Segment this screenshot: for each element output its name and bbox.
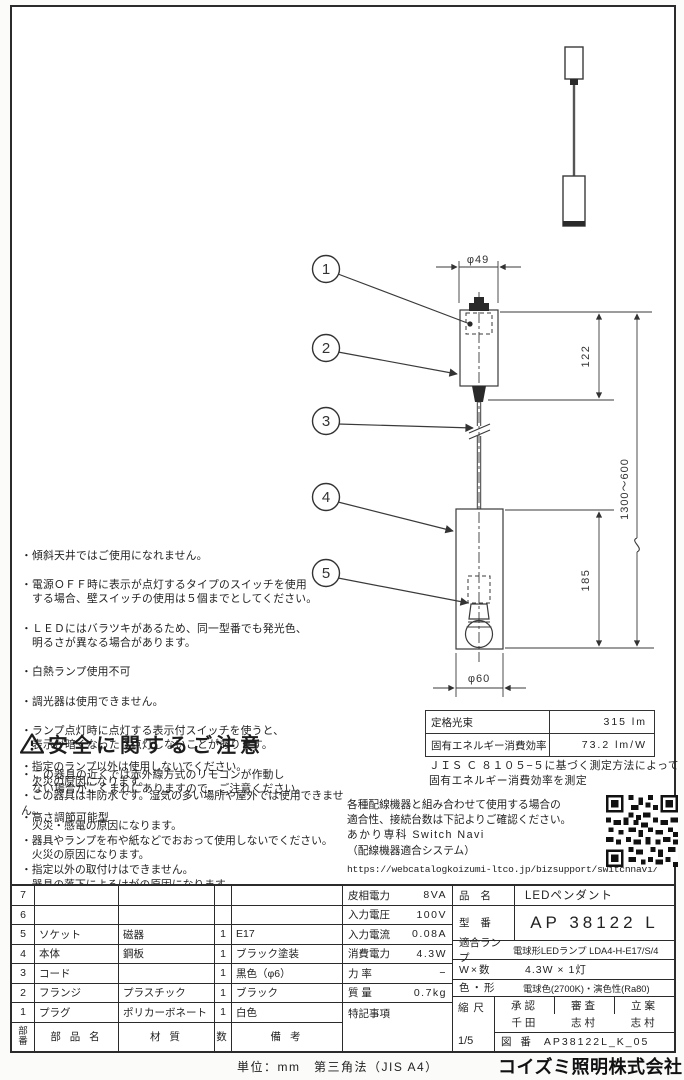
table-row: 適合ランプ 電球形LEDランプ LDA4-H-E17/S/4	[453, 941, 674, 961]
part-qty	[215, 886, 232, 905]
wattage: 4.3W × 1灯	[515, 960, 674, 979]
part-material: プラスチック	[119, 984, 215, 1003]
switch-navi-info: 各種配線機器と組み合わせて使用する場合の 適合性、接続台数は下記よりご確認くださ…	[347, 798, 599, 859]
approver-name: 志村	[555, 1014, 615, 1032]
header-material: 材 質	[119, 1023, 215, 1052]
weight-label: 質 量	[348, 985, 372, 1000]
usage-note: ・調光器は使用できません。	[21, 695, 343, 710]
navi-line: 適合性、接続台数は下記よりご確認ください。	[347, 813, 599, 828]
table-row: W×数 4.3W × 1灯	[453, 960, 674, 980]
table-row: 色・形 電球色(2700K)・演色性(Ra80)	[453, 980, 674, 998]
wattage-label: W×数	[453, 960, 515, 979]
part-no: 1	[12, 1003, 35, 1022]
part-qty: 1	[215, 1003, 232, 1022]
main-pendant-view	[456, 292, 503, 662]
table-row: 4 本体 鋼板 1 ブラック塗装	[12, 945, 342, 965]
part-name	[35, 906, 119, 925]
apparent-power-label: 皮相電力	[348, 888, 390, 903]
table-row: 皮相電力 8VA	[343, 886, 452, 906]
part-material: 鋼板	[119, 945, 215, 964]
approval-roles-row: 承認 審査 立案	[495, 997, 674, 1014]
units-projection-note: 単位：mm 第三角法（JIS A4）	[237, 1058, 439, 1075]
part-no: 3	[12, 964, 35, 983]
part-qty	[215, 906, 232, 925]
approval-names-row: 千田 志村 志村	[495, 1014, 674, 1032]
safety-section-title: 安全に関するご注意	[20, 729, 264, 758]
table-row: 品 名 LEDペンダント	[453, 886, 674, 906]
table-row: 1 プラグ ポリカーボネート 1 白色	[12, 1003, 342, 1023]
callout-4: 4	[322, 489, 330, 506]
drawing-number: AP38122L_K_05	[544, 1036, 649, 1048]
part-name: コード	[35, 964, 119, 983]
special-notes-label: 特記事項	[348, 1006, 390, 1021]
dim-label-overall-height: 1300〜600	[619, 458, 631, 520]
part-note: ブラック	[232, 984, 342, 1003]
scale-label: 縮 尺	[458, 1000, 494, 1015]
dim-label-body-height: 122	[580, 345, 592, 368]
part-note: 白色	[232, 1003, 342, 1022]
usage-note: ・白熱ランプ使用不可	[21, 665, 343, 680]
callout-1: 1	[322, 261, 330, 278]
header-part-no: 部 番	[12, 1023, 35, 1052]
table-row: 6	[12, 906, 342, 926]
compatible-lamp-label: 適合ランプ	[453, 941, 511, 960]
part-no: 7	[12, 886, 35, 905]
warning-triangle-icon	[20, 733, 44, 754]
part-no: 2	[12, 984, 35, 1003]
approval-role: 立案	[615, 997, 674, 1014]
navi-line: 各種配線機器と組み合わせて使用する場合の	[347, 798, 599, 813]
part-material: 磁器	[119, 925, 215, 944]
part-material: ポリカーボネート	[119, 1003, 215, 1022]
approval-role: 審査	[555, 997, 615, 1014]
title-block-table: 7 6 5 ソケット 磁器 1 E17 4 本体 鋼板 1 ブラック塗装	[10, 884, 676, 1053]
part-note	[232, 906, 342, 925]
product-name: LEDペンダント	[515, 886, 674, 905]
approval-role: 承認	[495, 997, 555, 1014]
table-row: 力 率 −	[343, 964, 452, 984]
dimension-break-squiggle	[635, 538, 640, 552]
approval-block: 縮 尺 1/5 承認 審査 立案 千田 志村 志村 図 番 AP38122L_K…	[453, 997, 674, 1051]
part-qty: 1	[215, 984, 232, 1003]
drawing-number-label: 図 番	[501, 1034, 534, 1049]
part-material	[119, 886, 215, 905]
table-row: 2 フランジ プラスチック 1 ブラック	[12, 984, 342, 1004]
photometric-note: ＪＩＳ Ｃ ８１０５−５に基づく測定方法によって 固有エネルギー消費効率を測定	[429, 759, 679, 788]
qr-code	[606, 795, 678, 867]
table-row: 消費電力 4.3W	[343, 945, 452, 965]
parts-table: 7 6 5 ソケット 磁器 1 E17 4 本体 鋼板 1 ブラック塗装	[12, 886, 343, 1051]
part-note	[232, 886, 342, 905]
safety-note: ・指定のランプ以外は使用しないでください。 火災の原因になります。	[21, 760, 351, 789]
special-notes-cell: 特記事項	[343, 1003, 452, 1051]
callout-3: 3	[322, 413, 330, 430]
part-material	[119, 906, 215, 925]
header-part-name: 部 品 名	[35, 1023, 119, 1052]
cord-strain-relief	[472, 386, 486, 402]
safety-title-text: 安全に関するご注意	[48, 729, 264, 758]
dim-label-shade-height: 185	[580, 569, 592, 592]
efficacy-value: 73.2 lm/W	[550, 739, 654, 751]
part-qty: 1	[215, 925, 232, 944]
input-voltage-label: 入力電圧	[348, 907, 390, 922]
color-form: 電球色(2700K)・演色性(Ra80)	[515, 980, 674, 997]
luminous-flux-label: 定格光束	[426, 711, 550, 733]
table-row: 3 コード 1 黒色（φ6）	[12, 964, 342, 984]
part-name: プラグ	[35, 1003, 119, 1022]
part-name: 本体	[35, 945, 119, 964]
part-name: フランジ	[35, 984, 119, 1003]
part-no: 5	[12, 925, 35, 944]
table-row: 5 ソケット 磁器 1 E17	[12, 925, 342, 945]
part-material	[119, 964, 215, 983]
callout-2: 2	[322, 340, 330, 357]
plug-cap	[469, 303, 489, 311]
electrical-table: 皮相電力 8VA 入力電圧 100V 入力電流 0.08A 消費電力 4.3W …	[343, 886, 453, 1051]
header-qty: 数	[215, 1023, 232, 1052]
safety-notes: ・指定のランプ以外は使用しないでください。 火災の原因になります。 ・この器具は…	[21, 760, 351, 892]
part-qty: 1	[215, 964, 232, 983]
scale-cell: 縮 尺 1/5	[453, 997, 495, 1051]
drawing-number-row: 図 番 AP38122L_K_05	[495, 1032, 674, 1052]
power-consumption-value: 4.3W	[416, 948, 447, 960]
input-voltage-value: 100V	[416, 909, 447, 921]
navi-line: （配線機器適合システム）	[347, 844, 599, 859]
color-form-label: 色・形	[453, 980, 515, 997]
table-row: 質 量 0.7kg	[343, 984, 452, 1004]
weight-value: 0.7kg	[414, 987, 447, 999]
photometric-table: 定格光束 315 lm 固有エネルギー消費効率 73.2 lm/W	[425, 710, 655, 757]
compatible-lamp: 電球形LEDランプ LDA4-H-E17/S/4	[511, 941, 674, 960]
luminous-flux-value: 315 lm	[550, 716, 654, 728]
dim-label-shade-diameter: φ60	[468, 673, 490, 685]
part-name	[35, 886, 119, 905]
dim-label-top-diameter: φ49	[467, 254, 489, 266]
parts-header-row: 部 番 部 品 名 材 質 数 備 考	[12, 1023, 342, 1052]
company-name: コイズミ照明株式会社	[498, 1053, 682, 1079]
mini-pendant-view	[563, 47, 585, 226]
efficacy-label: 固有エネルギー消費効率	[426, 734, 550, 756]
input-current-value: 0.08A	[412, 928, 447, 940]
approver-name: 志村	[614, 1014, 674, 1032]
product-title-block: 品 名 LEDペンダント 型 番 AP 38122 L 適合ランプ 電球形LED…	[453, 886, 674, 1051]
header-note: 備 考	[232, 1023, 342, 1052]
callout-leaders	[338, 274, 473, 603]
usage-note: ・傾斜天井ではご使用になれません。	[21, 549, 343, 564]
navi-service-name: あかり専科 Switch Navi	[347, 828, 599, 843]
part-no: 6	[12, 906, 35, 925]
table-row: 入力電圧 100V	[343, 906, 452, 926]
spec-sheet-page: { "page": { "unit_note": "単位：mm 第三角法（JIS…	[0, 0, 684, 1080]
input-current-label: 入力電流	[348, 927, 390, 942]
usage-note: ・ＬＥＤにはバラツキがあるため、同一型番でも発光色、 明るさが異なる場合がありま…	[21, 622, 343, 651]
power-consumption-label: 消費電力	[348, 946, 390, 961]
table-row: 定格光束 315 lm	[426, 711, 654, 734]
part-qty: 1	[215, 945, 232, 964]
product-name-label: 品 名	[453, 886, 515, 905]
power-factor-value: −	[439, 967, 447, 979]
part-note: ブラック塗装	[232, 945, 342, 964]
table-row: 7	[12, 886, 342, 906]
scale-value: 1/5	[458, 1035, 494, 1047]
table-row: 入力電流 0.08A	[343, 925, 452, 945]
part-note: 黒色（φ6）	[232, 964, 342, 983]
usage-note: ・電源ＯＦＦ時に表示が点灯するタイプのスイッチを使用 する場合、壁スイッチの使用…	[21, 578, 343, 607]
part-name: ソケット	[35, 925, 119, 944]
approver-name: 千田	[495, 1014, 555, 1032]
part-note: E17	[232, 925, 342, 944]
table-row: 固有エネルギー消費効率 73.2 lm/W	[426, 734, 654, 756]
part-no: 4	[12, 945, 35, 964]
safety-note: ・器具やランプを布や紙などでおおって使用しないでください。 火災の原因になります…	[21, 834, 351, 863]
shade-outline	[456, 509, 503, 649]
safety-note: ・この器具は非防水です。湿気の多い場所や屋外では使用できません。 火災・感電の原…	[21, 789, 351, 833]
power-factor-label: 力 率	[348, 966, 372, 981]
model-number: AP 38122 L	[515, 906, 674, 940]
apparent-power-value: 8VA	[423, 889, 447, 901]
